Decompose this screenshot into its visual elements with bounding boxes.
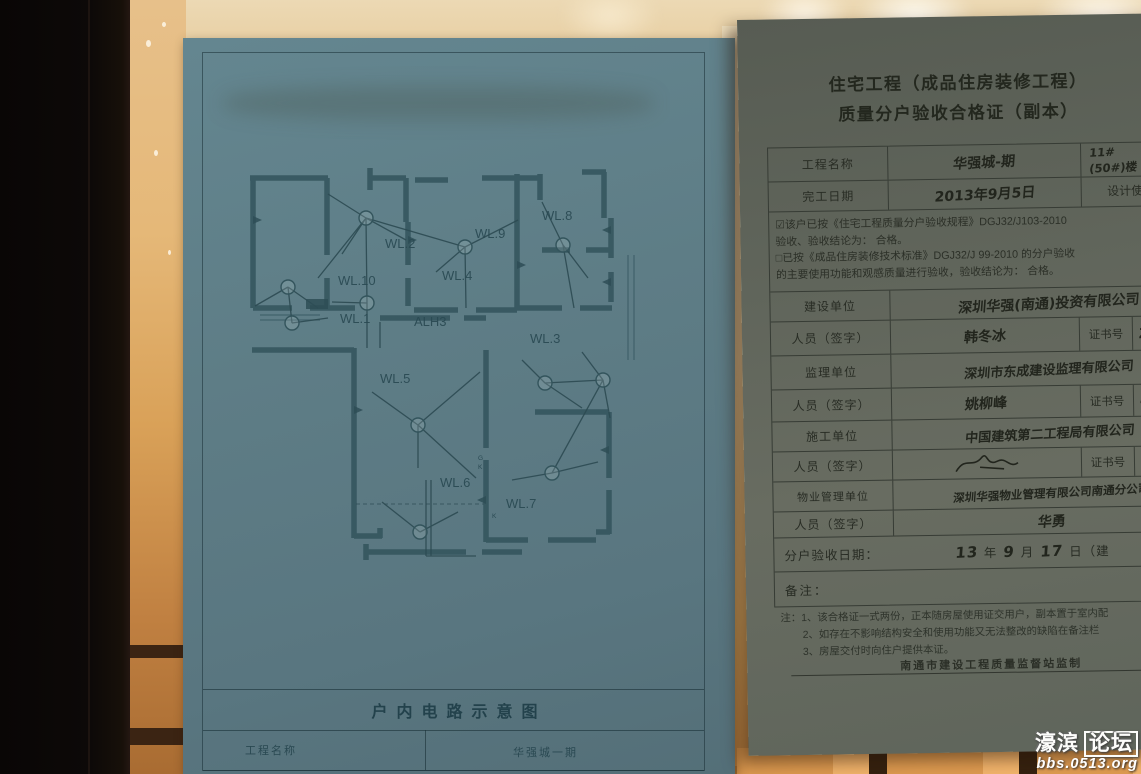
acceptance-date-label: 分户验收日期：	[784, 544, 879, 564]
checkbox-checked-icon: ☑	[775, 219, 785, 231]
unit-number-line1: 11#	[1089, 144, 1116, 160]
table-row: 人员（签字） 韩冬冰 证书号 ZGD	[771, 316, 1141, 357]
person-sign-label: 人员（签字）	[773, 451, 893, 482]
cert-no-label: 证书号	[1081, 447, 1135, 477]
label-wl8: WL.8	[542, 208, 572, 223]
table-row: 工程名称 华强城-期 11# (50#)楼 2 单	[768, 142, 1141, 183]
label-alh3: ALH3	[414, 314, 447, 329]
property-mgmt-label: 物业管理单位	[773, 481, 893, 512]
finish-date-label: 完工日期	[769, 181, 889, 212]
glass-speck	[168, 250, 171, 255]
title-block-line	[203, 770, 704, 771]
contractor-name-hand: 中国建筑第二工程局有限公司	[965, 419, 1136, 447]
acceptance-conclusions: ☑该户已按《住宅工程质量分户验收规程》DGJ32/J103-2010 验收、验收…	[769, 208, 1081, 292]
table-row: ☑该户已按《住宅工程质量分户验收规程》DGJ32/J103-2010 验收、验收…	[769, 206, 1141, 293]
circuit-labels: WL.2 WL.9 WL.8 WL.10 WL.4 WL.1 ALH3 WL.3…	[338, 208, 572, 511]
acceptance-certificate-page: 住宅工程（成品住房装修工程） 质量分户验收合格证（副本） 工程名称 华强城-期 …	[737, 13, 1141, 756]
watermark-url: bbs.0513.org	[1035, 757, 1138, 772]
certificate-title-line1: 住宅工程（成品住房装修工程）	[738, 65, 1141, 97]
cert-no-label: 证书号	[1079, 317, 1134, 351]
window-muntin	[128, 728, 186, 745]
glass-speck	[162, 22, 166, 27]
supervisor-label: 监理单位	[771, 355, 892, 390]
supervisor-name-hand: 深圳市东成建设监理有限公司	[964, 355, 1135, 383]
glass-speck	[154, 150, 158, 156]
person-sign-label: 人员（签字）	[774, 511, 894, 538]
forum-watermark: 濠滨论坛 bbs.0513.org	[1035, 731, 1138, 772]
conclusion2-line1: 已按《成品住房装修技术标准》DGJ32/J 99-2010 的分户验收	[782, 248, 1075, 265]
date-day-hand: 17	[1040, 541, 1064, 560]
project-name-hand: 华强城-期	[953, 150, 1016, 173]
label-wl10: WL.10	[338, 273, 376, 288]
remarks-label: 备注：	[785, 579, 829, 599]
person-sign-label: 人员（签字）	[771, 321, 892, 356]
property-mgmt-hand: 深圳华强物业管理有限公司南通分公司	[953, 480, 1141, 506]
finish-date-hand: 2013年9月5日	[934, 181, 1036, 206]
signature-scribble	[952, 452, 1022, 475]
faded-text-smudge	[223, 86, 653, 120]
date-year-unit: 年	[984, 542, 998, 561]
label-wl4: WL.4	[442, 268, 472, 283]
date-month-unit: 月	[1021, 541, 1035, 560]
window-frame-strip	[128, 0, 186, 774]
date-year-hand: 13	[954, 542, 978, 561]
conclusion2-line2: 的主要使用功能和观感质量进行验收，验收结论为： 合格。	[776, 263, 1076, 284]
table-row: 备注：	[775, 566, 1141, 607]
table-row: 监理单位 深圳市东成建设监理有限公司	[771, 350, 1141, 391]
table-row: 分户验收日期： 13 年 9 月 17 日（建	[774, 532, 1141, 573]
watermark-name-part1: 濠滨	[1035, 732, 1079, 755]
certificate-table: 工程名称 华强城-期 11# (50#)楼 2 单 完工日期 2013年9月5日…	[767, 141, 1141, 608]
label-wl7: WL.7	[506, 496, 536, 511]
circuit-diagram-page: WL.2 WL.9 WL.8 WL.10 WL.4 WL.1 ALH3 WL.3…	[183, 38, 735, 774]
table-divider	[425, 730, 426, 770]
design-life-label: 设计使用年限	[1081, 176, 1141, 207]
label-wl1: WL.1	[340, 311, 370, 326]
diagram-title: 户内电路示意图	[183, 698, 735, 722]
project-name-label: 工程名称	[245, 742, 297, 758]
watermark-name-part2: 论坛	[1084, 731, 1138, 757]
project-name-value: 华强城一期	[513, 744, 578, 760]
apartment-circuit-diagram: WL.2 WL.9 WL.8 WL.10 WL.4 WL.1 ALH3 WL.3…	[230, 160, 650, 592]
frame-groove	[88, 0, 90, 774]
title-block-line	[203, 689, 704, 690]
label-wl5: WL.5	[380, 371, 410, 386]
mark-k2: K	[492, 513, 497, 520]
property-person-hand: 华勇	[1037, 510, 1067, 531]
builder-name-hand: 深圳华强(南通)投资有限公司	[957, 288, 1140, 317]
photo-of-documents: WL.2 WL.9 WL.8 WL.10 WL.4 WL.1 ALH3 WL.3…	[0, 0, 1141, 774]
black-door-frame	[0, 0, 130, 774]
mark-g: G	[478, 455, 483, 462]
builder-person-hand: 韩冬冰	[963, 325, 1007, 347]
label-wl2: WL.2	[385, 236, 415, 251]
supervisor-person-hand: 姚柳峰	[964, 392, 1008, 414]
label-wl9: WL.9	[475, 226, 505, 241]
person-sign-label: 人员（签字）	[772, 389, 892, 422]
project-name-label: 工程名称	[768, 147, 889, 182]
conclusion1-line1: 该户已按《住宅工程质量分户验收规程》DGJ32/J103-2010	[785, 215, 1067, 231]
contractor-label: 施工单位	[772, 421, 892, 452]
title-block-line	[203, 730, 704, 731]
window-muntin	[128, 645, 186, 658]
label-wl3: WL.3	[530, 331, 560, 346]
socket-symbols	[253, 216, 611, 504]
glass-speck	[146, 40, 151, 47]
label-wl6: WL.6	[440, 475, 470, 490]
cert-no-label: 证书号	[1080, 385, 1134, 417]
date-month-hand: 9	[1003, 542, 1016, 561]
date-day-suffix: 日（建	[1069, 540, 1110, 560]
certificate-title-line2: 质量分户验收合格证（副本）	[738, 95, 1141, 127]
mark-k1: K	[478, 464, 483, 471]
builder-label: 建设单位	[770, 291, 890, 322]
